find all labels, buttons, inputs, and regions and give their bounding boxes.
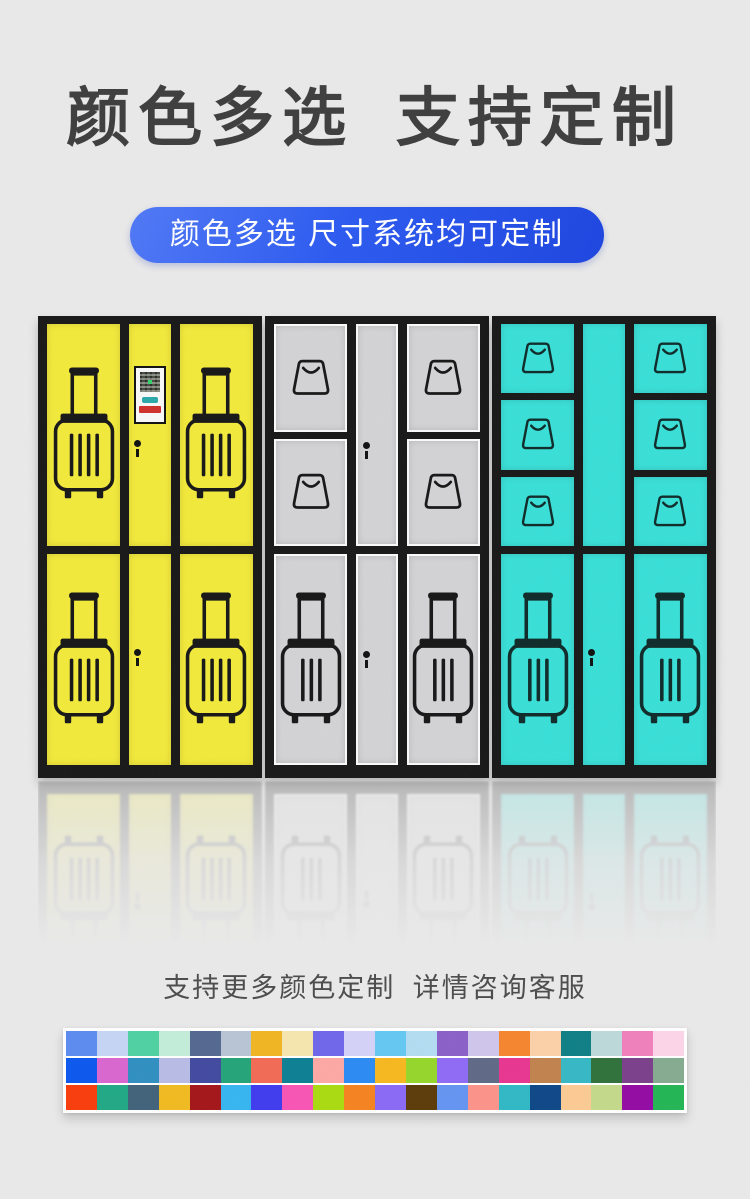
- keyhole-icon: [363, 651, 370, 668]
- color-swatch: [128, 1085, 159, 1110]
- color-swatch: [561, 1058, 592, 1083]
- color-swatch: [591, 1058, 622, 1083]
- color-swatch: [159, 1085, 190, 1110]
- product-detail-page: 颜色多选 支持定制 颜色多选 尺寸系统均可定制: [0, 0, 750, 1199]
- color-swatch: [66, 1058, 97, 1083]
- locker-yellow: [38, 316, 262, 778]
- color-swatch: [97, 1058, 128, 1083]
- color-swatch: [653, 1085, 684, 1110]
- color-swatch: [190, 1085, 221, 1110]
- color-swatch: [221, 1058, 252, 1083]
- luggage-icon: [52, 591, 116, 729]
- locker-cyan: [492, 316, 716, 778]
- color-swatch: [159, 1031, 190, 1056]
- color-swatch: [128, 1058, 159, 1083]
- color-swatch: [561, 1085, 592, 1110]
- color-swatch: [499, 1085, 530, 1110]
- locker-door: [634, 554, 707, 765]
- color-swatch: [66, 1085, 97, 1110]
- color-swatch: [190, 1031, 221, 1056]
- color-swatch: [530, 1058, 561, 1083]
- color-swatch: [159, 1058, 190, 1083]
- color-swatch: [468, 1031, 499, 1056]
- control-column: [356, 554, 397, 765]
- control-column: [583, 324, 624, 546]
- keyhole-icon: [134, 440, 141, 457]
- color-swatch: [437, 1058, 468, 1083]
- color-swatch: [561, 1031, 592, 1056]
- luggage-icon: [184, 591, 248, 729]
- locker-door: [47, 554, 120, 765]
- locker-door: [407, 554, 480, 765]
- palette-row: [66, 1085, 684, 1110]
- locker-door: [407, 324, 480, 432]
- screen-button-red: [139, 406, 161, 413]
- locker-door: [274, 439, 347, 547]
- color-swatch: [406, 1085, 437, 1110]
- bag-icon: [288, 471, 334, 513]
- color-swatch: [499, 1058, 530, 1083]
- color-swatch: [282, 1085, 313, 1110]
- locker-door: [180, 554, 253, 765]
- qr-code-icon: [140, 372, 160, 392]
- color-swatch: [406, 1031, 437, 1056]
- locker-door: [634, 400, 707, 469]
- color-swatch: [190, 1058, 221, 1083]
- palette-row: [66, 1058, 684, 1083]
- color-swatch: [282, 1031, 313, 1056]
- locker-door: [634, 477, 707, 546]
- color-swatch: [251, 1085, 282, 1110]
- color-swatch: [622, 1031, 653, 1056]
- color-swatch: [437, 1031, 468, 1056]
- locker-row: [38, 316, 716, 778]
- bag-icon: [518, 340, 558, 377]
- color-swatch: [591, 1031, 622, 1056]
- color-swatch: [437, 1085, 468, 1110]
- color-swatch: [375, 1085, 406, 1110]
- locker-door: [407, 439, 480, 547]
- luggage-icon: [638, 591, 702, 729]
- color-swatch: [499, 1031, 530, 1056]
- color-swatch: [591, 1085, 622, 1110]
- color-swatch: [530, 1031, 561, 1056]
- luggage-icon: [279, 591, 343, 729]
- locker-door: [501, 477, 574, 546]
- locker-door: [501, 324, 574, 393]
- color-swatch: [221, 1085, 252, 1110]
- color-swatch: [468, 1058, 499, 1083]
- control-column: [129, 324, 170, 546]
- color-swatch: [66, 1031, 97, 1056]
- locker-door: [274, 554, 347, 765]
- color-swatch: [468, 1085, 499, 1110]
- subtitle-banner: 颜色多选 尺寸系统均可定制: [130, 207, 604, 263]
- color-swatch: [282, 1058, 313, 1083]
- keyhole-icon: [363, 442, 370, 459]
- locker-door: [180, 324, 253, 546]
- color-swatch: [653, 1031, 684, 1056]
- luggage-icon: [52, 366, 116, 504]
- bag-icon: [518, 416, 558, 453]
- palette-row: [66, 1031, 684, 1056]
- locker-door: [501, 554, 574, 765]
- bag-icon: [650, 493, 690, 530]
- color-swatch: [221, 1031, 252, 1056]
- locker-door: [274, 324, 347, 432]
- color-swatch: [344, 1085, 375, 1110]
- bag-icon: [420, 357, 466, 399]
- bag-icon: [650, 416, 690, 453]
- luggage-icon: [411, 591, 475, 729]
- color-swatch: [97, 1085, 128, 1110]
- screen-panel: [134, 366, 166, 424]
- bag-icon: [518, 493, 558, 530]
- bag-icon: [420, 471, 466, 513]
- footer-note: 支持更多颜色定制 详情咨询客服: [0, 966, 750, 1005]
- locker-door: [47, 324, 120, 546]
- color-swatch: [344, 1058, 375, 1083]
- locker-reflection: [38, 781, 716, 959]
- control-column: [129, 554, 170, 765]
- bag-icon: [650, 340, 690, 377]
- luggage-icon: [506, 591, 570, 729]
- color-swatch: [653, 1058, 684, 1083]
- locker-door: [501, 400, 574, 469]
- control-column: [583, 554, 624, 765]
- color-swatch: [97, 1031, 128, 1056]
- keyhole-icon: [588, 649, 595, 666]
- color-swatch: [128, 1031, 159, 1056]
- control-column: [356, 324, 397, 546]
- color-swatch: [313, 1058, 344, 1083]
- locker-gray: [265, 316, 489, 778]
- color-palette-strip: [63, 1028, 687, 1113]
- color-swatch: [375, 1058, 406, 1083]
- color-swatch: [251, 1031, 282, 1056]
- bag-icon: [288, 357, 334, 399]
- color-swatch: [375, 1031, 406, 1056]
- color-swatch: [622, 1058, 653, 1083]
- color-swatch: [530, 1085, 561, 1110]
- color-swatch: [251, 1058, 282, 1083]
- color-swatch: [344, 1031, 375, 1056]
- color-swatch: [622, 1085, 653, 1110]
- locker-door: [634, 324, 707, 393]
- color-swatch: [406, 1058, 437, 1083]
- color-swatch: [313, 1031, 344, 1056]
- screen-button-teal: [142, 397, 158, 403]
- luggage-icon: [184, 366, 248, 504]
- keyhole-icon: [134, 649, 141, 666]
- reflection-fade: [38, 781, 716, 959]
- page-title: 颜色多选 支持定制: [0, 82, 750, 156]
- color-swatch: [313, 1085, 344, 1110]
